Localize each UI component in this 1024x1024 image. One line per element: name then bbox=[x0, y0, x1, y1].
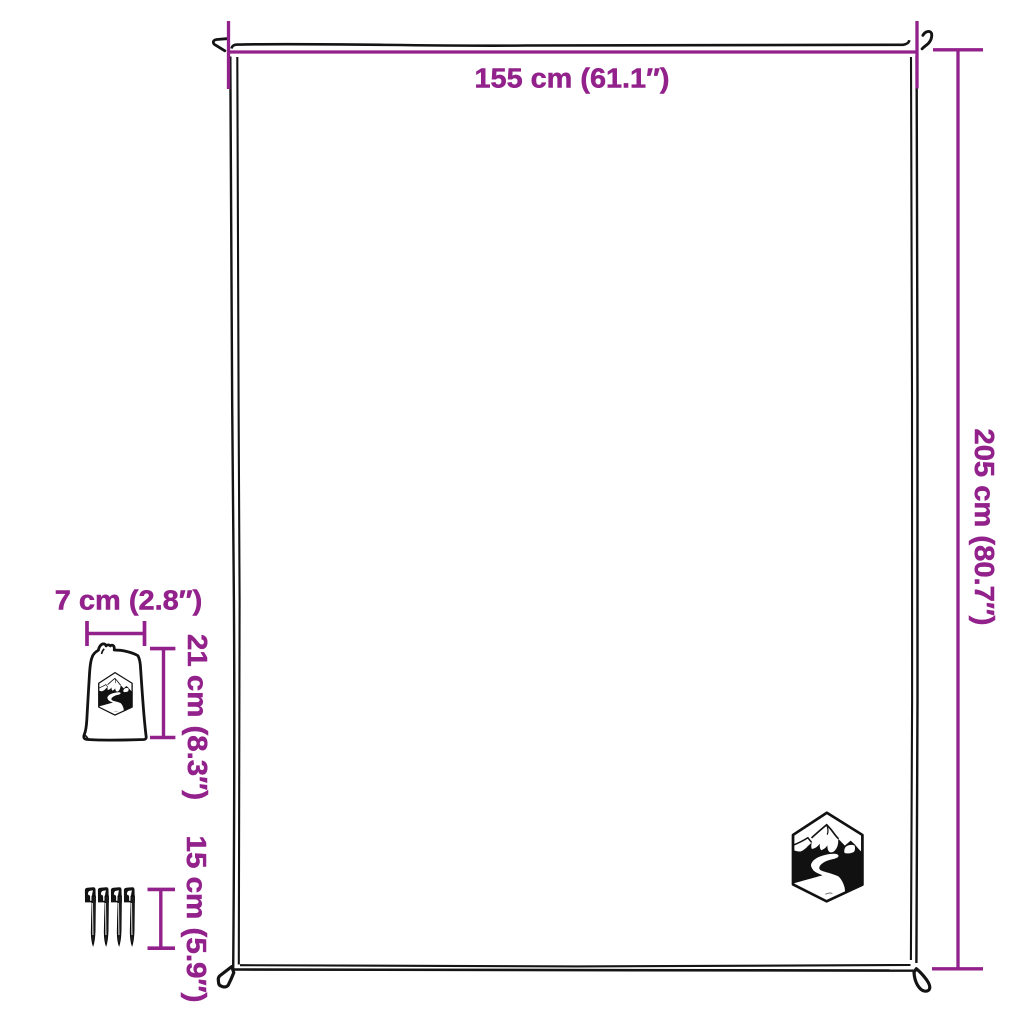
svg-text:15 cm (5.9″): 15 cm (5.9″) bbox=[181, 836, 212, 1003]
svg-text:205 cm (80.7″): 205 cm (80.7″) bbox=[969, 429, 1000, 626]
svg-text:7 cm (2.8″): 7 cm (2.8″) bbox=[55, 585, 203, 616]
svg-text:155 cm (61.1″): 155 cm (61.1″) bbox=[475, 63, 670, 94]
svg-text:21 cm (8.3″): 21 cm (8.3″) bbox=[182, 634, 213, 800]
